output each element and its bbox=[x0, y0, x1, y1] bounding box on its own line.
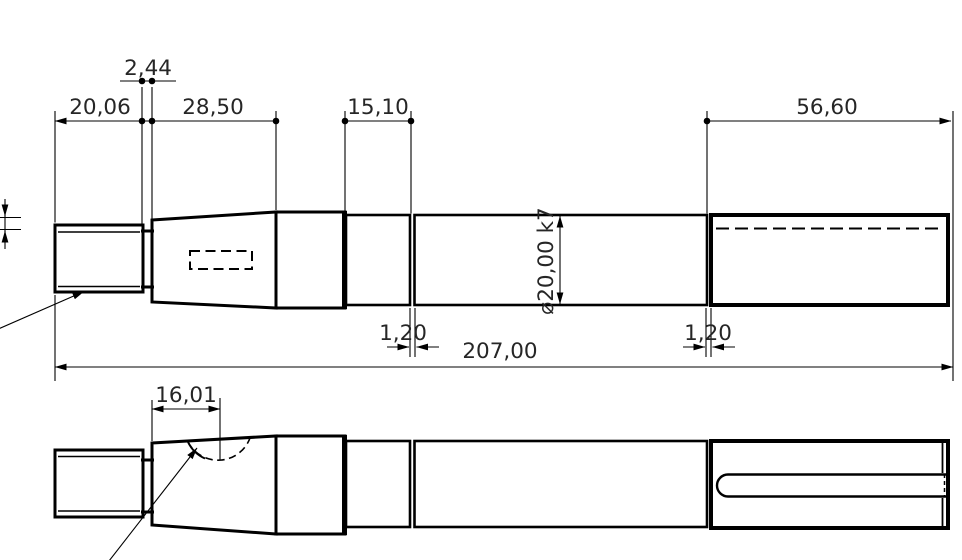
dim-label-groove-right: 1,20 bbox=[684, 321, 732, 346]
main-section-outline bbox=[415, 441, 708, 527]
dim-dot bbox=[704, 118, 711, 125]
collar-outline bbox=[276, 212, 345, 308]
dim-label-keyseat-position: 16,01 bbox=[155, 383, 217, 408]
dim-dot bbox=[139, 118, 146, 125]
dim-label-thread-length: 20,06 bbox=[69, 95, 131, 120]
hidden-keyseat-rect bbox=[190, 251, 252, 269]
drawing-canvas: 2,44 20,06 28,50 15,10 56,60 ⌀20,00 k7 1… bbox=[0, 0, 962, 560]
keyed-end-outline bbox=[711, 441, 948, 528]
dim-label-taper-length: 28,50 bbox=[182, 95, 244, 120]
threaded-end-outline bbox=[55, 225, 143, 292]
dim-dot bbox=[149, 118, 156, 125]
main-section-outline bbox=[415, 215, 708, 305]
dim-label-neck-width: 2,44 bbox=[124, 56, 172, 81]
dim-label-collar-length: 15,10 bbox=[347, 95, 409, 120]
shaft-drawing: 2,44 20,06 28,50 15,10 56,60 ⌀20,00 k7 1… bbox=[0, 0, 962, 560]
keyway-slot bbox=[717, 475, 948, 497]
dim-label-groove-left: 1,20 bbox=[379, 321, 427, 346]
mid-section-outline bbox=[346, 215, 410, 305]
dim-label-keyway-section-length: 56,60 bbox=[796, 95, 858, 120]
bottom-view bbox=[55, 435, 948, 560]
dimension-labels: 2,44 20,06 28,50 15,10 56,60 ⌀20,00 k7 1… bbox=[69, 56, 858, 408]
mid-section-outline bbox=[346, 441, 410, 527]
top-view bbox=[0, 211, 948, 330]
threaded-end-outline bbox=[55, 450, 143, 517]
dim-label-shaft-diameter: ⌀20,00 k7 bbox=[534, 207, 559, 314]
leader-line-thread bbox=[0, 292, 84, 331]
collar-outline bbox=[276, 436, 345, 534]
dim-dot bbox=[273, 118, 280, 125]
taper-section-outline bbox=[152, 212, 276, 308]
dim-label-overall-length: 207,00 bbox=[462, 339, 537, 364]
taper-section-outline bbox=[152, 436, 276, 534]
